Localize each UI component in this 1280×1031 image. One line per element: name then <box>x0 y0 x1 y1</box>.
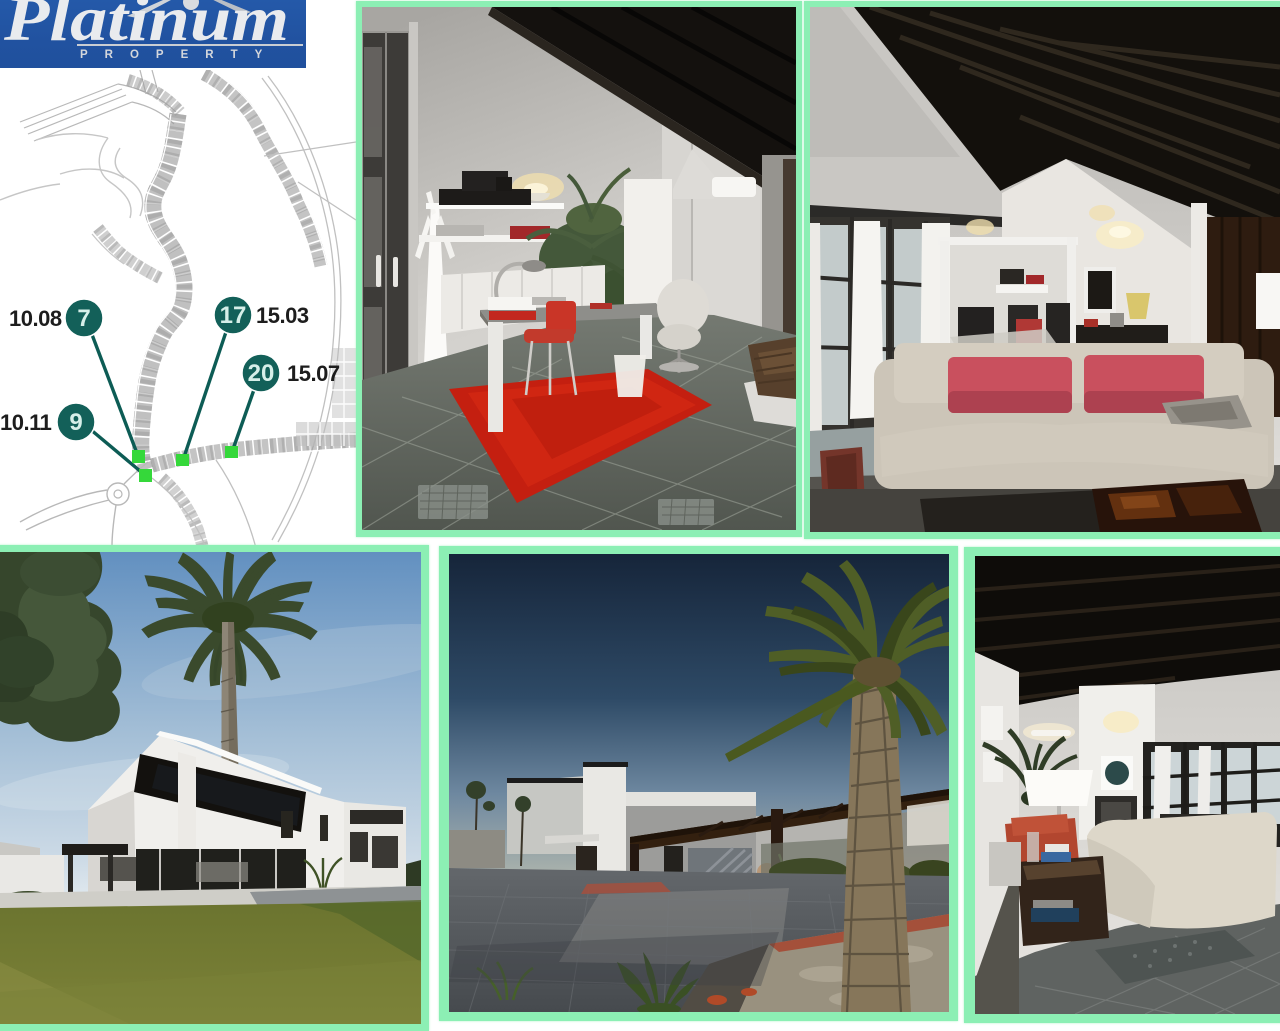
svg-text:15.07: 15.07 <box>287 361 340 386</box>
svg-text:17: 17 <box>220 302 247 329</box>
svg-text:10.08: 10.08 <box>9 306 62 331</box>
svg-text:20: 20 <box>248 360 275 387</box>
svg-text:7: 7 <box>77 305 90 332</box>
svg-text:15.03: 15.03 <box>256 303 309 328</box>
svg-text:10.11: 10.11 <box>0 410 52 435</box>
svg-text:9: 9 <box>69 409 82 436</box>
